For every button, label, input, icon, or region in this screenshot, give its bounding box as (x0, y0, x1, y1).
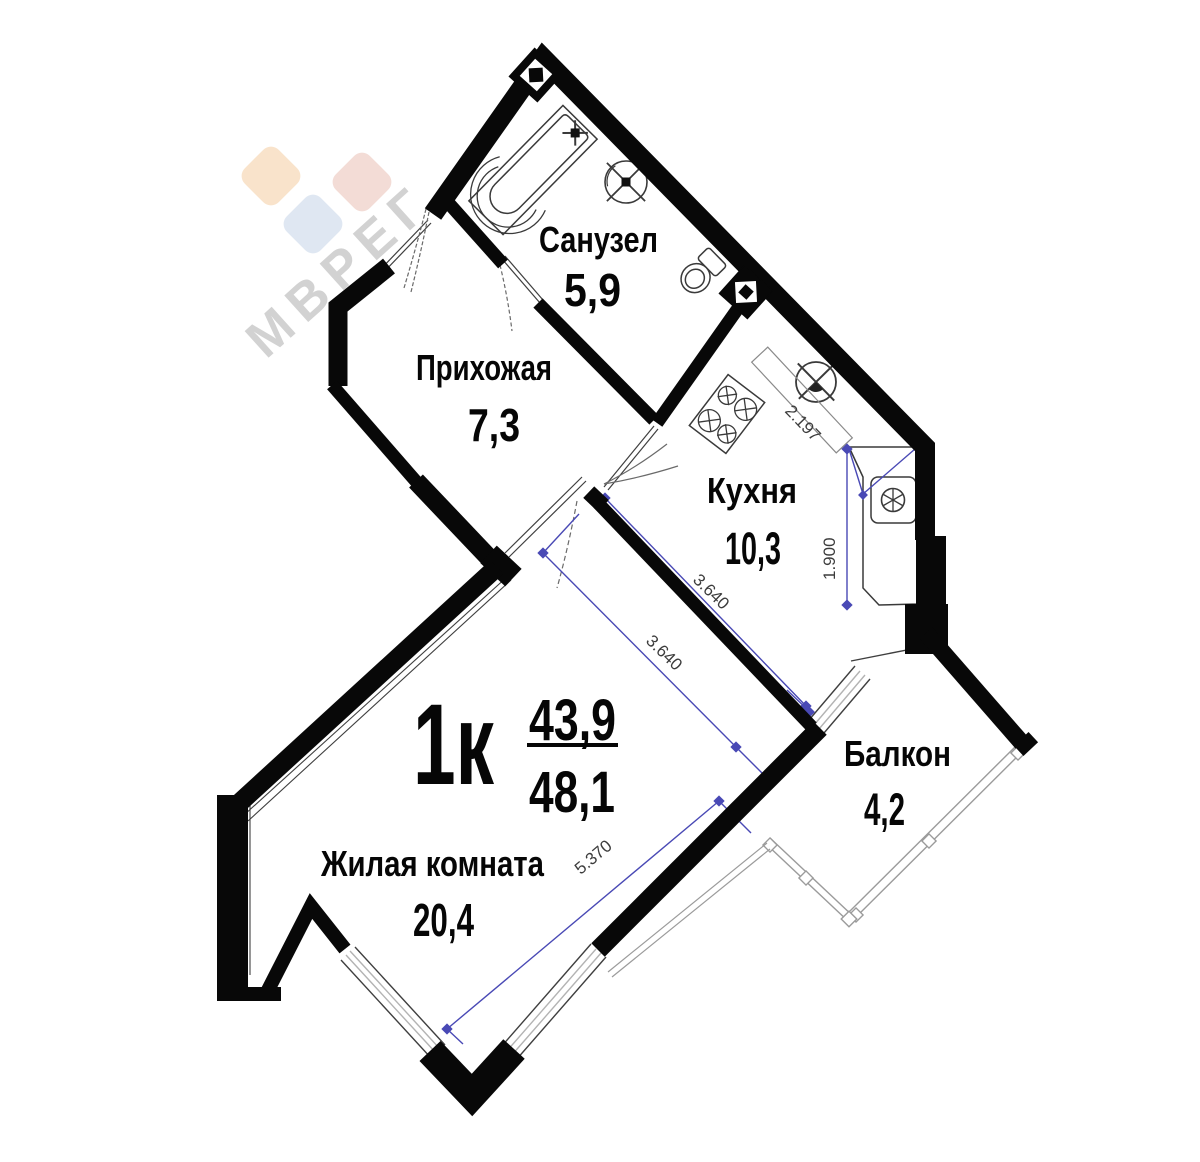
svg-text:1.900: 1.900 (820, 537, 839, 580)
svg-text:48,1: 48,1 (529, 760, 615, 825)
svg-text:10,3: 10,3 (725, 523, 781, 574)
svg-text:20,4: 20,4 (413, 894, 474, 946)
svg-text:4,2: 4,2 (864, 784, 905, 835)
svg-text:Прихожая: Прихожая (416, 347, 552, 388)
svg-text:Жилая комната: Жилая комната (320, 843, 545, 884)
svg-text:5,9: 5,9 (564, 264, 621, 316)
svg-text:Санузел: Санузел (539, 219, 658, 260)
svg-text:Балкон: Балкон (844, 733, 951, 774)
svg-text:1к: 1к (413, 681, 494, 809)
svg-text:7,3: 7,3 (468, 399, 520, 451)
svg-text:Кухня: Кухня (707, 470, 797, 511)
